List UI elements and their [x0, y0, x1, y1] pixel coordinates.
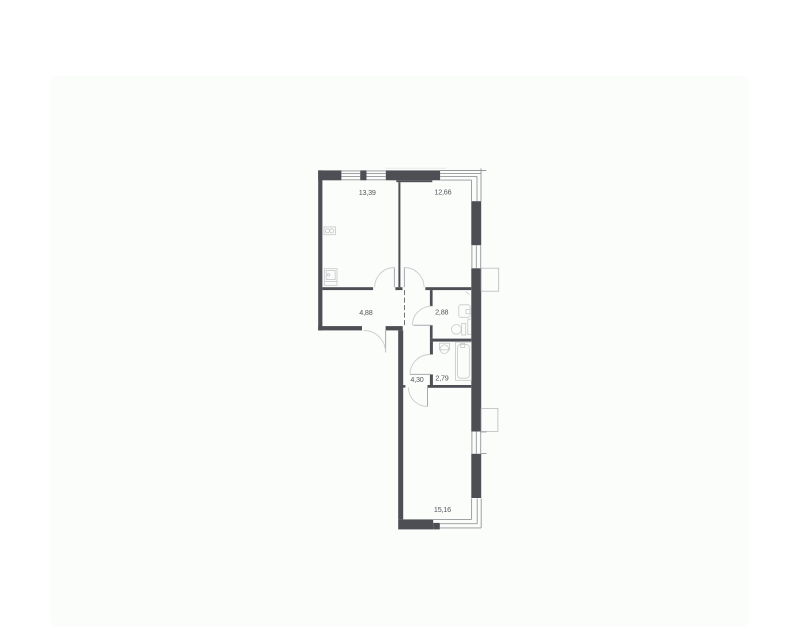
svg-text:2,79: 2,79	[435, 373, 448, 382]
svg-text:12,66: 12,66	[434, 187, 451, 196]
svg-text:4,88: 4,88	[359, 308, 372, 317]
svg-text:13,39: 13,39	[359, 188, 376, 197]
svg-text:15,16: 15,16	[434, 505, 451, 514]
svg-text:4,30: 4,30	[410, 375, 423, 384]
svg-text:2,88: 2,88	[435, 308, 448, 317]
